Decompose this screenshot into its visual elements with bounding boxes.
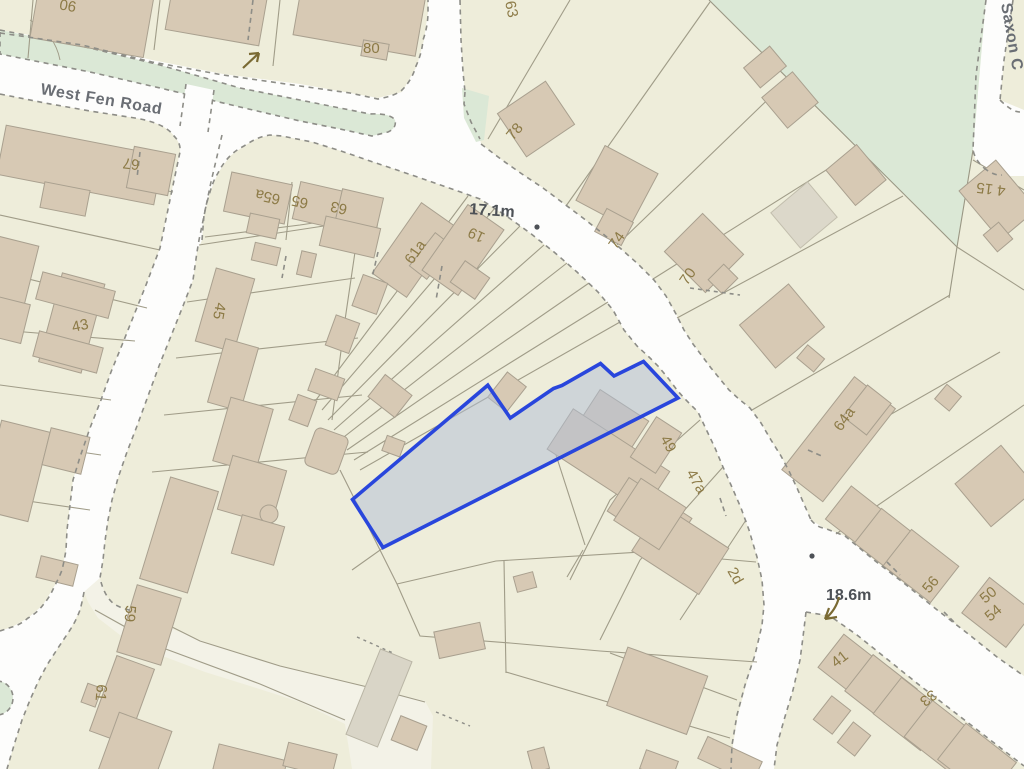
svg-text:61: 61	[92, 684, 110, 702]
svg-text:4 15: 4 15	[975, 178, 1006, 198]
svg-text:43: 43	[70, 316, 90, 336]
svg-text:80: 80	[363, 40, 380, 57]
svg-text:67: 67	[122, 154, 141, 173]
svg-text:59: 59	[121, 605, 139, 623]
svg-text:17.1m: 17.1m	[469, 201, 515, 221]
svg-text:90: 90	[58, 0, 77, 15]
svg-text:45: 45	[209, 301, 229, 320]
svg-text:18.6m: 18.6m	[826, 587, 871, 604]
